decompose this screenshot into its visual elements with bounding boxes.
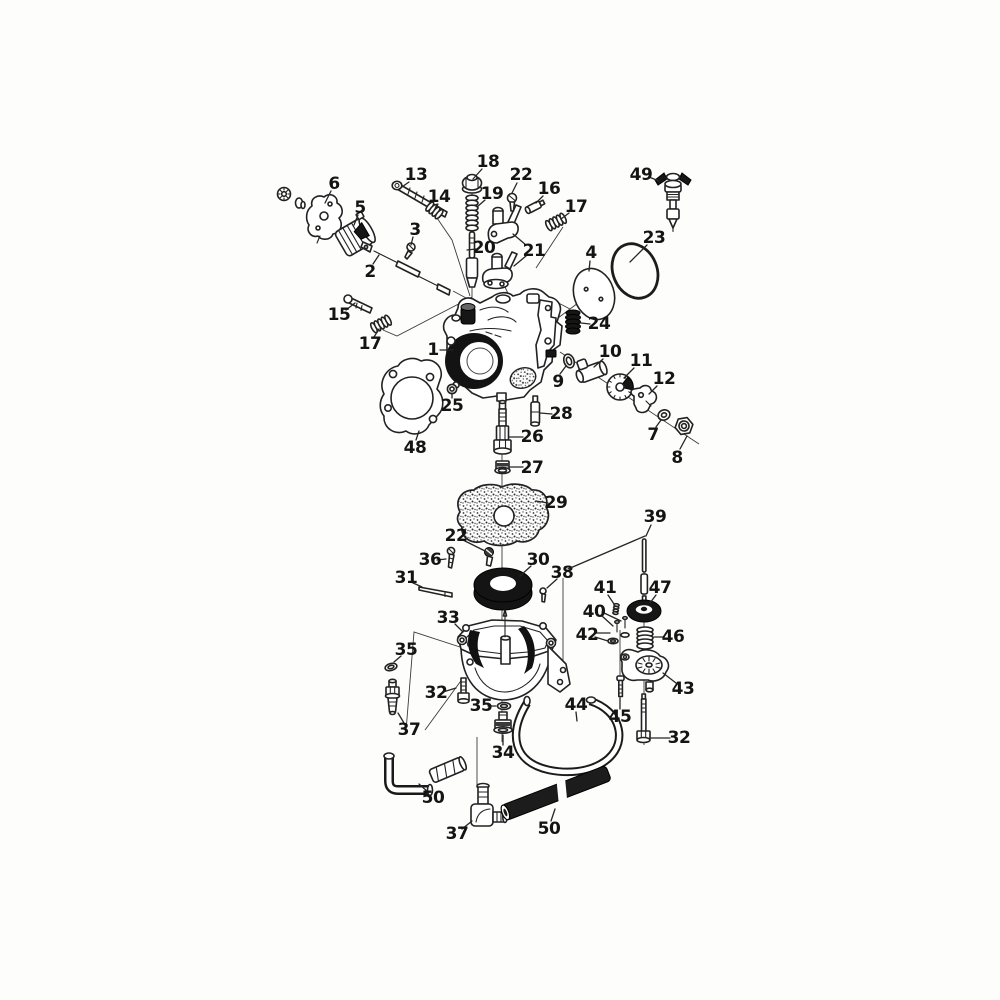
part-screw-32-left <box>458 678 469 703</box>
callout-22: 22 <box>445 526 468 546</box>
callout-47: 47 <box>649 578 672 598</box>
part-ferrule-16 <box>524 199 545 214</box>
part-pump-cover-43 <box>621 650 669 692</box>
part-oring-35-left <box>384 662 397 672</box>
callout-38: 38 <box>551 563 574 583</box>
part-jet-26 <box>494 401 511 455</box>
callout-26: 26 <box>521 427 544 447</box>
part-stud-28 <box>531 396 540 426</box>
part-fitting-37-bottom <box>471 784 507 827</box>
callout-31: 31 <box>395 568 418 588</box>
part-cap-nut-18 <box>463 175 482 194</box>
callout-12: 12 <box>653 369 676 389</box>
callout-35: 35 <box>395 640 418 660</box>
callout-30: 30 <box>527 550 550 570</box>
part-gasket-29 <box>458 484 549 545</box>
part-nut-25 <box>447 384 456 393</box>
callout-13: 13 <box>405 165 428 185</box>
part-gasket-48 <box>380 359 443 434</box>
part-screw-45 <box>617 676 624 697</box>
part-diaphragm-47 <box>627 596 661 622</box>
callout-23: 23 <box>643 228 666 248</box>
part-washer-7 <box>657 408 672 422</box>
callout-40: 40 <box>583 602 606 622</box>
callout-37: 37 <box>398 720 421 740</box>
callout-34: 34 <box>492 743 515 763</box>
part-screw-36 <box>447 547 454 568</box>
callout-3: 3 <box>409 220 420 240</box>
callout-21: 21 <box>523 241 546 261</box>
callout-44: 44 <box>565 695 588 715</box>
part-oring-35-right <box>498 703 511 710</box>
callout-35: 35 <box>470 696 493 716</box>
callout-37: 37 <box>446 824 469 844</box>
callout-6: 6 <box>328 174 339 194</box>
callout-50: 50 <box>538 819 561 839</box>
part-orings-42 <box>608 633 629 644</box>
part-spring-17-left <box>369 314 392 333</box>
part-enrichener-cover <box>278 188 343 244</box>
part-pump-rod-39 <box>641 539 647 594</box>
callout-19: 19 <box>481 184 504 204</box>
callout-48: 48 <box>404 438 427 458</box>
callout-32: 32 <box>668 728 691 748</box>
callout-29: 29 <box>545 493 568 513</box>
callout-2: 2 <box>364 262 375 282</box>
part-drain-plug-34 <box>494 712 512 733</box>
callout-28: 28 <box>550 404 573 424</box>
callout-49: 49 <box>630 165 653 185</box>
part-needle-31 <box>419 587 452 597</box>
callout-5: 5 <box>354 198 365 218</box>
part-spring-19 <box>466 195 478 231</box>
callout-27: 27 <box>521 458 544 478</box>
callout-32: 32 <box>425 683 448 703</box>
part-foam-ring-30 <box>474 568 532 610</box>
diagram-canvas: 6131418192216174953202121517423241101191… <box>0 0 1000 1000</box>
callout-41: 41 <box>594 578 617 598</box>
callout-20: 20 <box>473 238 496 258</box>
part-screw-38 <box>540 588 546 602</box>
callout-15: 15 <box>328 305 351 325</box>
leader-line-39 <box>568 536 645 569</box>
part-wheel-11 <box>607 374 633 400</box>
callout-17: 17 <box>359 334 382 354</box>
part-float-bowl-33 <box>458 610 571 700</box>
callout-17: 17 <box>565 197 588 217</box>
parts <box>278 173 695 826</box>
callout-42: 42 <box>576 625 599 645</box>
callout-8: 8 <box>671 448 682 468</box>
part-fitting-37-left <box>386 679 400 714</box>
exploded-diagram: 6131418192216174953202121517423241101191… <box>0 0 1000 1000</box>
callout-16: 16 <box>538 179 561 199</box>
part-hose-50-left-sleeve <box>429 756 468 783</box>
part-spring-46 <box>637 627 653 649</box>
callout-4: 4 <box>585 243 597 263</box>
part-screw-22-mid <box>485 548 494 567</box>
part-spring-41 <box>613 603 620 614</box>
part-screw-3 <box>405 243 415 259</box>
part-spring-24 <box>566 310 581 334</box>
callout-33: 33 <box>437 608 460 628</box>
callout-45: 45 <box>609 707 632 727</box>
part-nut-27 <box>495 461 510 474</box>
callout-10: 10 <box>599 342 622 362</box>
callout-24: 24 <box>588 314 611 334</box>
callout-50: 50 <box>422 788 445 808</box>
part-bolt-32-right <box>637 694 650 743</box>
part-nut-8 <box>674 417 694 435</box>
callout-1: 1 <box>427 340 438 360</box>
callout-7: 7 <box>647 425 658 445</box>
callout-39: 39 <box>644 507 667 527</box>
callout-25: 25 <box>441 396 464 416</box>
part-float-valve-49 <box>655 173 691 232</box>
callout-22: 22 <box>510 165 533 185</box>
callout-46: 46 <box>662 627 685 647</box>
callout-11: 11 <box>630 351 653 371</box>
callout-9: 9 <box>552 372 563 392</box>
callout-18: 18 <box>477 152 500 172</box>
callout-14: 14 <box>428 187 451 207</box>
callout-43: 43 <box>672 679 695 699</box>
part-carb-body <box>444 289 562 401</box>
callout-36: 36 <box>419 550 442 570</box>
